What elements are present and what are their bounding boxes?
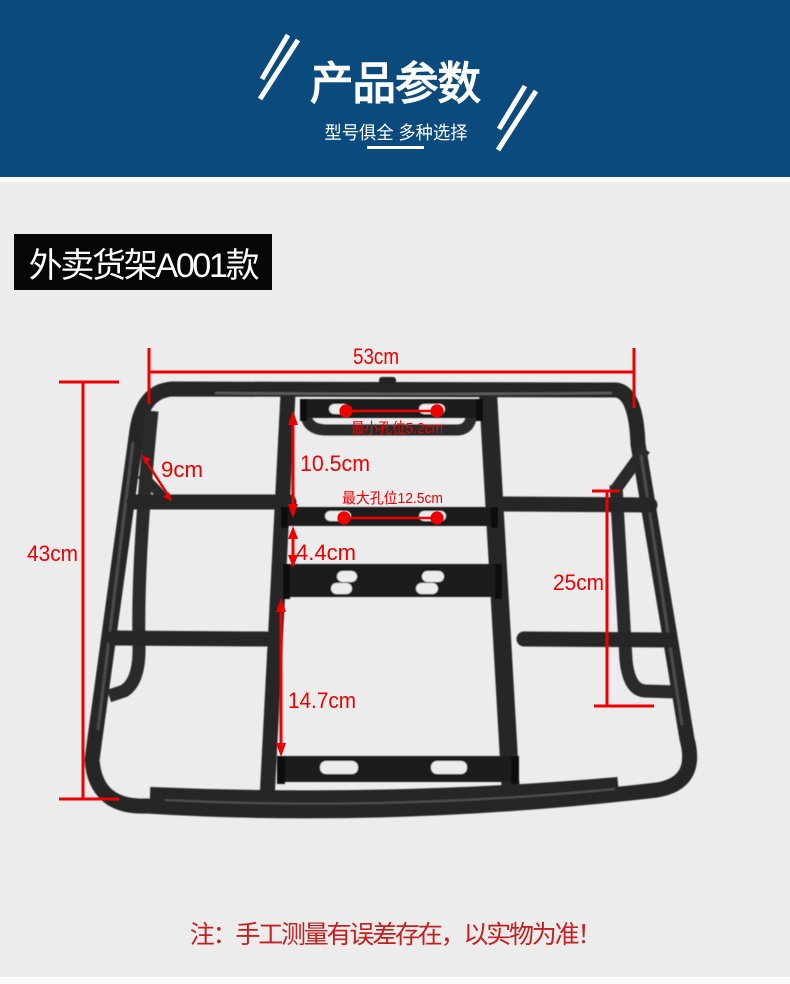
svg-text:最小孔位5.2cm: 最小孔位5.2cm [351, 420, 443, 437]
svg-text:4.4cm: 4.4cm [296, 540, 356, 565]
svg-text:14.7cm: 14.7cm [288, 688, 356, 713]
svg-text:43cm: 43cm [27, 541, 78, 566]
svg-text:9cm: 9cm [161, 457, 203, 482]
svg-text:53cm: 53cm [353, 344, 399, 369]
svg-text:25cm: 25cm [553, 570, 604, 595]
svg-text:最大孔位12.5cm: 最大孔位12.5cm [342, 490, 443, 507]
svg-text:10.5cm: 10.5cm [300, 451, 370, 476]
